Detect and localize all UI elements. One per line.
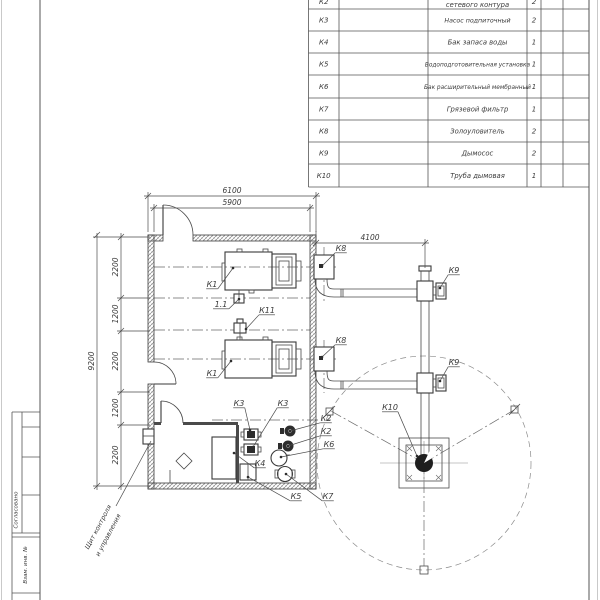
dim-text: 2200 <box>111 257 120 276</box>
spec-name: Труба дымовая <box>450 172 505 180</box>
label-К8: К8 <box>336 336 347 345</box>
spec-pos: К6 <box>319 83 329 91</box>
label-К5: К5 <box>291 492 302 501</box>
spec-name: Бак запаса воды <box>448 38 508 46</box>
flue-elbow <box>315 371 334 389</box>
spec-name: Бак расширительный мембранный <box>424 85 531 91</box>
spec-qty: 1 <box>532 83 536 91</box>
label-К11: К11 <box>259 306 275 315</box>
spec-qty: 1 <box>532 61 536 69</box>
ash-collector-k8 <box>314 347 334 371</box>
spec-qty: 2 <box>532 0 537 6</box>
spec-name: Золоуловитель <box>450 127 504 135</box>
label-К8: К8 <box>336 244 347 253</box>
floor-plan <box>93 192 531 574</box>
boiler-k1 <box>222 337 301 378</box>
label-К1: К1 <box>207 369 218 378</box>
network-pump-k2 <box>280 426 296 437</box>
stamp-soglasovano: Согласовано <box>14 491 20 529</box>
spec-name: Водоподготовительная установка <box>425 62 531 68</box>
dim-text: 2200 <box>111 445 120 464</box>
left-door-swing <box>154 362 176 384</box>
dim-text: 2200 <box>111 351 120 370</box>
spec-qty: 2 <box>532 17 537 25</box>
dim-text: 1200 <box>111 398 120 417</box>
label-К3: К3 <box>234 399 245 408</box>
dim-text: 9200 <box>87 351 96 370</box>
stamp-vzam-inv: Взам. инв. № <box>23 546 29 584</box>
spec-pos: К7 <box>319 106 329 114</box>
feed-pump-k3 <box>241 444 261 455</box>
label-К3: К3 <box>278 399 289 408</box>
spec-pos: К4 <box>319 39 328 47</box>
control-panel <box>143 429 154 444</box>
spec-pos: К8 <box>319 128 329 136</box>
label-К10: К10 <box>382 403 398 412</box>
spec-table: К2сетевого контура2К3Насос подпиточный2К… <box>309 0 590 187</box>
smoke-exhauster-k9 <box>433 283 446 299</box>
dim-text: 5900 <box>222 198 241 207</box>
dim-text: 1200 <box>111 304 120 323</box>
label-К2: К2 <box>321 414 332 423</box>
valve-k11 <box>234 319 246 340</box>
label-К7: К7 <box>323 492 335 501</box>
label-К1: К1 <box>207 280 218 289</box>
spec-name: Грязевой фильтр <box>447 105 509 113</box>
spec-pos: К10 <box>317 172 331 180</box>
smoke-exhauster-k9 <box>433 375 446 391</box>
flue-system <box>314 255 446 456</box>
spec-pos: К2 <box>319 0 329 6</box>
dim-text: 6100 <box>222 186 241 195</box>
spec-qty: 2 <box>532 128 537 136</box>
spec-name: Насос подпиточный <box>444 17 510 24</box>
spec-qty: 2 <box>532 150 537 158</box>
label-К2: К2 <box>321 427 332 436</box>
flue-elbow <box>315 279 334 297</box>
note-text: Щит контроляи управления <box>83 503 123 557</box>
chimney-k10 <box>380 438 468 488</box>
label-К9: К9 <box>449 266 460 275</box>
boiler-room-drawing-sheet: СогласованоВзам. инв. № К2сетевого конту… <box>0 0 600 600</box>
spec-qty: 1 <box>532 39 536 47</box>
flue-junction <box>417 373 433 393</box>
top-door-swing <box>163 205 193 235</box>
spec-qty: 1 <box>532 172 536 180</box>
spec-pos: К3 <box>319 17 328 25</box>
ash-collector-k8 <box>314 255 334 279</box>
valve-1-1 <box>234 290 244 303</box>
label-1.1: 1.1 <box>215 300 228 309</box>
room-door-swing <box>161 401 183 423</box>
label-К9: К9 <box>449 358 460 367</box>
spec-name: Дымосос <box>461 149 494 157</box>
dim-text: 4100 <box>360 233 379 242</box>
spec-qty: 1 <box>532 106 536 114</box>
desk-and-chair <box>170 453 196 483</box>
boiler-k1 <box>222 249 301 293</box>
spec-name: сетевого контура <box>446 1 509 9</box>
spec-pos: К9 <box>319 150 329 158</box>
water-tank-k4 <box>212 437 236 479</box>
label-К6: К6 <box>324 440 335 449</box>
label-К4: К4 <box>255 459 266 468</box>
flue-junction <box>417 281 433 301</box>
spec-pos: К5 <box>319 61 329 69</box>
